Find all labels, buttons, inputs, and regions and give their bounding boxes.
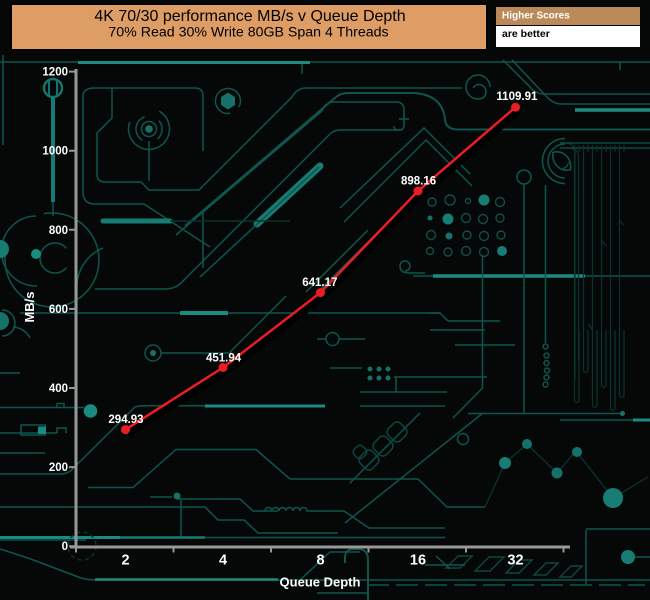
svg-text:8: 8 xyxy=(316,552,324,568)
svg-text:2: 2 xyxy=(121,552,129,568)
svg-text:1200: 1200 xyxy=(42,67,68,79)
svg-text:294.93: 294.93 xyxy=(108,414,143,426)
svg-text:1000: 1000 xyxy=(42,146,68,158)
svg-text:1109.91: 1109.91 xyxy=(496,91,538,103)
svg-text:898.16: 898.16 xyxy=(401,176,436,188)
svg-text:Queue Depth: Queue Depth xyxy=(280,575,361,590)
svg-text:32: 32 xyxy=(507,552,523,568)
svg-text:800: 800 xyxy=(49,225,68,237)
svg-text:16: 16 xyxy=(410,552,426,568)
svg-text:641.17: 641.17 xyxy=(302,277,337,289)
svg-text:200: 200 xyxy=(49,462,68,474)
svg-text:4: 4 xyxy=(219,552,227,568)
svg-text:are better: are better xyxy=(502,28,550,40)
svg-text:0: 0 xyxy=(62,541,68,553)
svg-text:600: 600 xyxy=(49,304,68,316)
svg-text:451.94: 451.94 xyxy=(206,353,242,365)
svg-text:MB/s: MB/s xyxy=(22,291,37,322)
svg-text:70% Read 30% Write 80GB Span 4: 70% Read 30% Write 80GB Span 4 Threads xyxy=(108,25,388,41)
svg-text:4K 70/30 performance MB/s v Qu: 4K 70/30 performance MB/s v Queue Depth xyxy=(94,8,405,25)
svg-text:Higher Scores: Higher Scores xyxy=(502,11,570,22)
svg-text:400: 400 xyxy=(49,383,68,395)
